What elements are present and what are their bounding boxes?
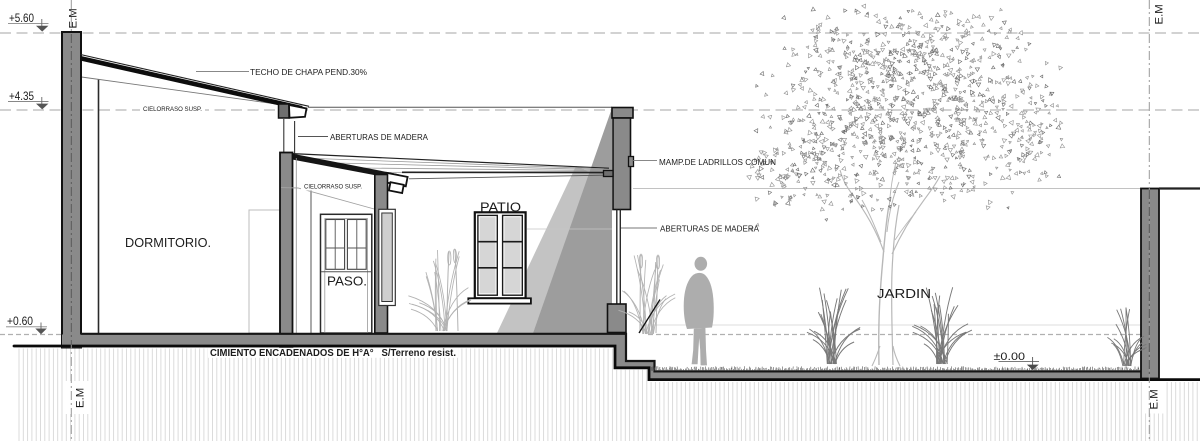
svg-text:+0.60: +0.60 [7,316,33,328]
svg-text:CIELORRASO SUSP.: CIELORRASO SUSP. [304,184,362,191]
svg-text:DORMITORIO.: DORMITORIO. [125,235,211,250]
svg-text:JARDIN: JARDIN [877,286,931,301]
svg-text:E.M: E.M [1149,389,1161,409]
svg-text:PATIO: PATIO [480,200,521,215]
svg-text:E.M: E.M [68,8,80,28]
svg-text:TECHO DE CHAPA PEND.30%: TECHO DE CHAPA PEND.30% [250,67,367,77]
svg-text:ABERTURAS DE MADERA: ABERTURAS DE MADERA [330,132,428,142]
svg-text:CIMIENTO ENCADENADOS DE H°A°: CIMIENTO ENCADENADOS DE H°A° S/Terreno r… [210,348,456,359]
svg-text:MAMP.DE LADRILLOS COMUN: MAMP.DE LADRILLOS COMUN [659,157,776,167]
svg-text:ABERTURAS DE MADERA: ABERTURAS DE MADERA [660,224,759,234]
svg-text:E.M: E.M [1154,4,1166,24]
svg-text:CIELORRASO SUSP.: CIELORRASO SUSP. [143,106,202,113]
svg-text:E.M: E.M [75,388,87,408]
svg-text:PASO.: PASO. [327,274,367,289]
